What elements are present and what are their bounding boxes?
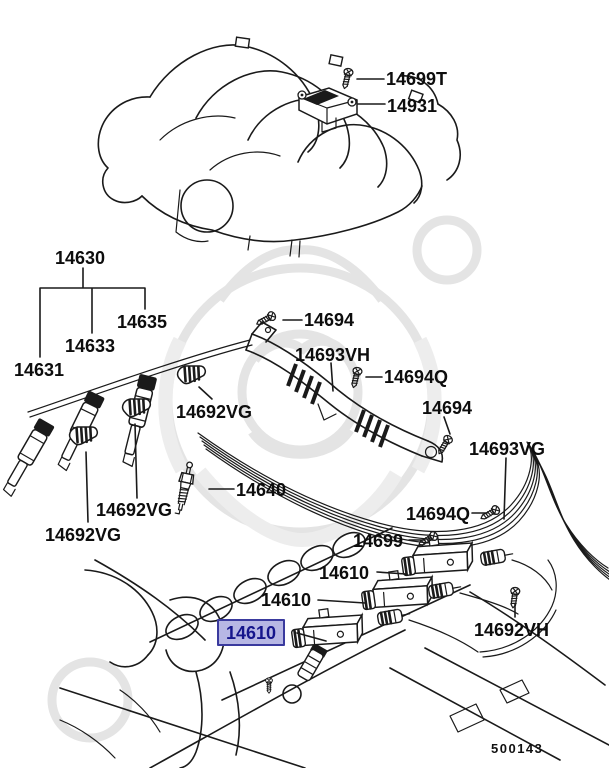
bolt-icon-14694-top xyxy=(255,310,277,328)
part-label-14633[interactable]: 14633 xyxy=(65,337,115,355)
part-label-14692VG-3[interactable]: 14692VG xyxy=(45,526,121,544)
part-label-14694-right[interactable]: 14694 xyxy=(422,399,472,417)
part-label-14699T[interactable]: 14699T xyxy=(386,70,447,88)
part-label-14610-2[interactable]: 14610 xyxy=(261,591,311,609)
part-label-14694Q-2[interactable]: 14694Q xyxy=(406,505,470,523)
part-label-14693VG[interactable]: 14693VG xyxy=(469,440,545,458)
part-label-14694-top[interactable]: 14694 xyxy=(304,311,354,329)
bolt-icon-14694-right xyxy=(435,434,453,456)
part-label-14699[interactable]: 14699 xyxy=(353,532,403,550)
part-label-14640[interactable]: 14640 xyxy=(236,481,286,499)
engine-bolt-icon xyxy=(266,678,273,693)
bolt-icon-14699T xyxy=(340,68,354,90)
part-label-14630[interactable]: 14630 xyxy=(55,249,105,267)
selected-coil-drawing xyxy=(289,604,365,651)
part-label-14692VG-2[interactable]: 14692VG xyxy=(96,501,172,519)
part-label-14693VH[interactable]: 14693VH xyxy=(295,346,370,364)
part-label-14631[interactable]: 14631 xyxy=(14,361,64,379)
part-label-14931[interactable]: 14931 xyxy=(387,97,437,115)
parts-diagram-page: 14699T 14931 14630 14635 14633 14631 146… xyxy=(0,0,609,768)
parts-diagram-artwork xyxy=(0,0,609,768)
drawing-number: 500143 xyxy=(491,741,543,756)
part-label-14635[interactable]: 14635 xyxy=(117,313,167,331)
part-label-14610-1[interactable]: 14610 xyxy=(319,564,369,582)
part-label-14694Q-1[interactable]: 14694Q xyxy=(384,368,448,386)
part-label-14692VG-1[interactable]: 14692VG xyxy=(176,403,252,421)
part-label-14692VH[interactable]: 14692VH xyxy=(474,621,549,639)
part-label-14610-selected[interactable]: 14610 xyxy=(217,619,285,646)
